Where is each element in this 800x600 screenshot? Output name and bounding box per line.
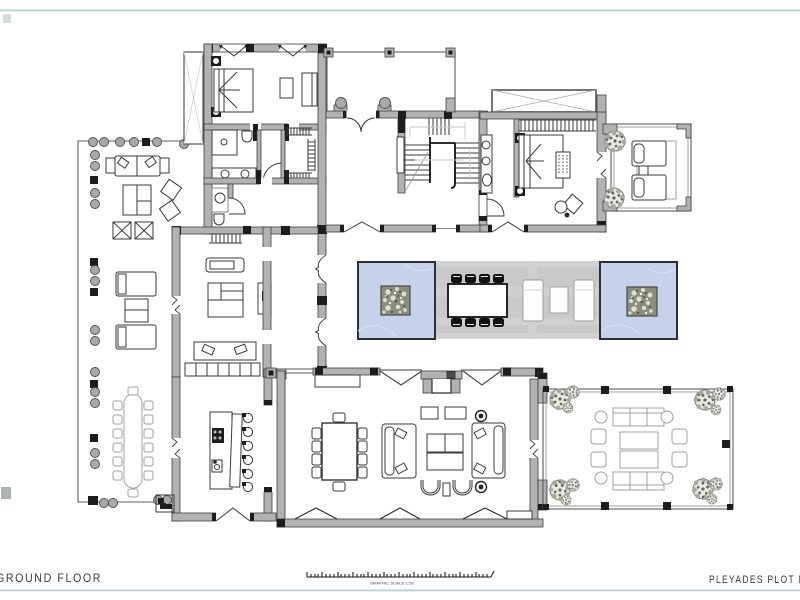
svg-text:GRAPHIC SCALE 1:50: GRAPHIC SCALE 1:50 [370, 582, 414, 586]
svg-text:PLEYADES PLOT N: PLEYADES PLOT N [709, 574, 800, 586]
svg-text:GROUND FLOOR: GROUND FLOOR [0, 573, 102, 585]
